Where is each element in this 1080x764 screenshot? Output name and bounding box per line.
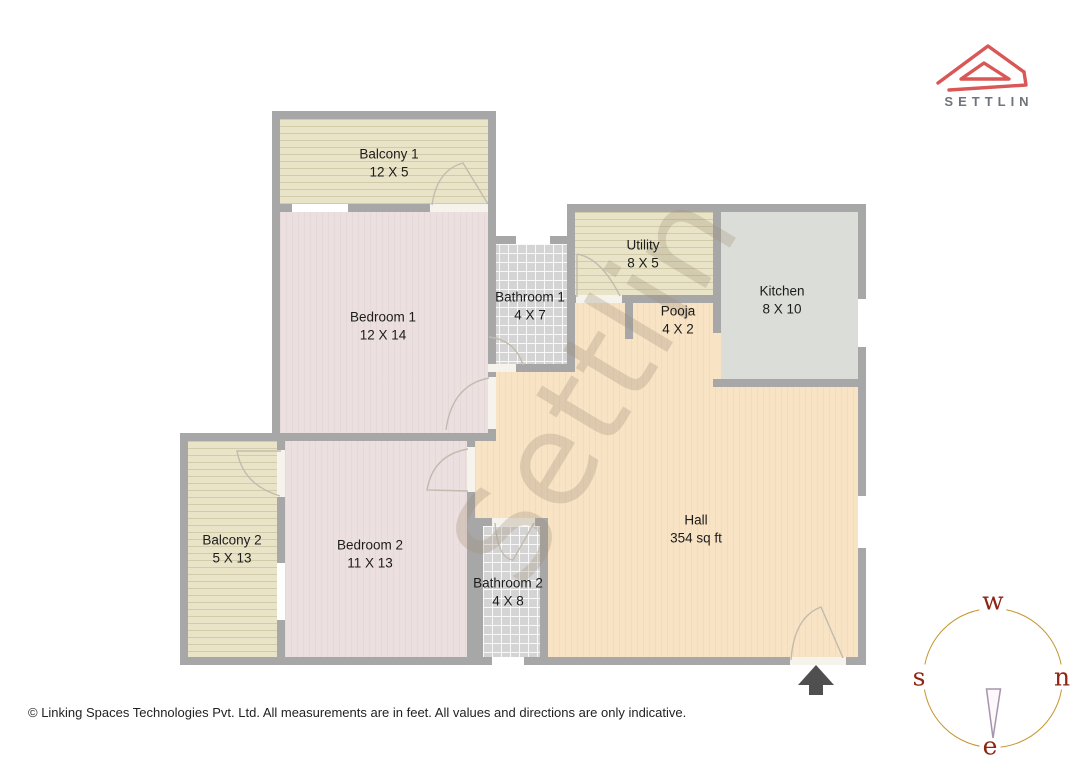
room-name: Hall [670, 511, 722, 529]
room-name: Kitchen [759, 282, 804, 300]
room-name: Bathroom 2 [473, 574, 543, 592]
compass-letter-east: e [980, 734, 1001, 759]
room-label-pooja: Pooja 4 X 2 [661, 302, 696, 337]
room-label-hall: Hall 354 sq ft [670, 511, 722, 546]
room-name: Balcony 1 [359, 145, 418, 163]
room-label-bathroom-2: Bathroom 2 4 X 8 [473, 574, 543, 609]
room-name: Bedroom 2 [337, 536, 403, 554]
copyright-disclaimer: © Linking Spaces Technologies Pvt. Ltd. … [28, 705, 686, 720]
room-name: Balcony 2 [202, 531, 261, 549]
room-dims: 4 X 7 [495, 306, 565, 324]
door-swing-arcs [0, 0, 1080, 764]
compass-letter-north: n [1051, 665, 1073, 690]
room-label-bathroom-1: Bathroom 1 4 X 7 [495, 288, 565, 323]
brand-name: SETTLIN [933, 94, 1045, 109]
room-label-utility: Utility 8 X 5 [627, 236, 660, 271]
room-dims: 12 X 14 [350, 326, 416, 344]
room-name: Pooja [661, 302, 696, 320]
compass-letter-west: w [979, 589, 1006, 614]
room-dims: 4 X 2 [661, 320, 696, 338]
room-label-kitchen: Kitchen 8 X 10 [759, 282, 804, 317]
entrance-arrow-icon [796, 664, 838, 698]
room-dims: 354 sq ft [670, 529, 722, 547]
room-dims: 8 X 5 [627, 254, 660, 272]
floor-plan-page: Settlin Balcony 1 12 X 5 Bedroom 1 12 X … [0, 0, 1080, 764]
room-dims: 4 X 8 [473, 592, 543, 610]
settlin-logo-icon [933, 30, 1045, 92]
room-name: Bedroom 1 [350, 308, 416, 326]
room-dims: 8 X 10 [759, 300, 804, 318]
room-label-balcony-1: Balcony 1 12 X 5 [359, 145, 418, 180]
compass-letter-south: s [910, 665, 929, 690]
room-dims: 5 X 13 [202, 549, 261, 567]
compass [923, 608, 1063, 748]
room-dims: 12 X 5 [359, 163, 418, 181]
room-name: Bathroom 1 [495, 288, 565, 306]
room-name: Utility [627, 236, 660, 254]
room-label-bedroom-2: Bedroom 2 11 X 13 [337, 536, 403, 571]
room-dims: 11 X 13 [337, 554, 403, 572]
room-label-bedroom-1: Bedroom 1 12 X 14 [350, 308, 416, 343]
room-label-balcony-2: Balcony 2 5 X 13 [202, 531, 261, 566]
